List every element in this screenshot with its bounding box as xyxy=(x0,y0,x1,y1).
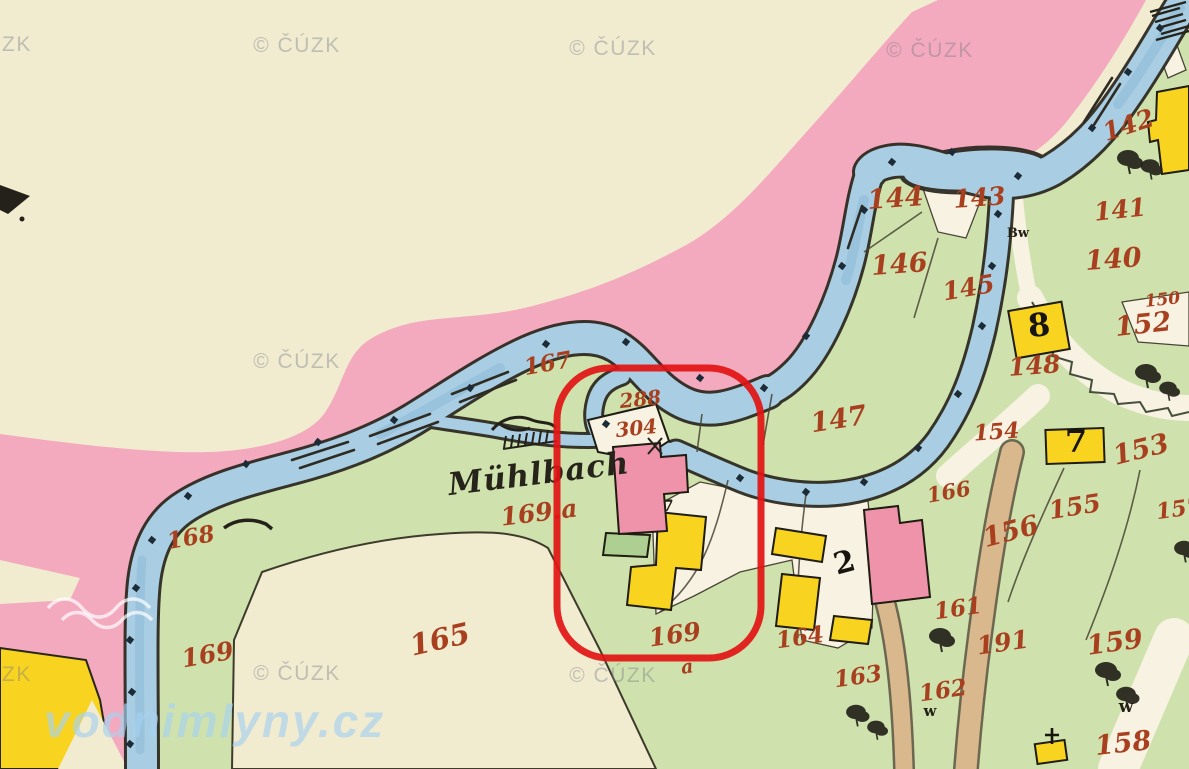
cuzk-watermark-partial: ZK xyxy=(2,663,32,686)
cuzk-watermark: © ČÚZK xyxy=(253,34,340,57)
cuzk-watermark: © ČÚZK xyxy=(253,350,340,373)
historical-cadastral-map: Mühlbach xyxy=(0,0,1189,769)
cuzk-watermark: © ČÚZK xyxy=(569,37,656,60)
parcel-number-label: 146 xyxy=(870,247,929,282)
parcel-number-label: 158 xyxy=(1093,725,1153,762)
farm-yellow-c xyxy=(830,616,872,644)
parcel-number-label: 288 xyxy=(617,385,662,413)
map-abbrev-label: w xyxy=(923,702,938,720)
mill-garden-parcel xyxy=(603,533,650,557)
parcel-number-label: 140 xyxy=(1084,242,1143,277)
parcel-number-label: 152 xyxy=(1113,306,1172,343)
parcel-number-label: 304 xyxy=(614,414,658,442)
house-number-label: 7 xyxy=(1065,422,1087,460)
map-abbrev-label: Bw xyxy=(1007,226,1030,241)
house-number-label: 8 xyxy=(1026,305,1051,345)
parcel-number-label: 148 xyxy=(1007,349,1061,382)
site-watermark: vodnimlyny.cz xyxy=(44,695,385,747)
parcel-number-label: 144 xyxy=(866,181,924,216)
cuzk-watermark-partial: ZK xyxy=(2,33,32,56)
parcel-number-label: 141 xyxy=(1093,192,1148,226)
parcel-number-label: 154 xyxy=(973,417,1021,446)
cuzk-watermark: © ČÚZK xyxy=(253,662,340,685)
farm-building-pink xyxy=(864,506,930,604)
map-abbrev-label: w xyxy=(1118,697,1134,717)
house-number-label: 7 xyxy=(662,496,673,515)
cuzk-watermark: © ČÚZK xyxy=(886,39,973,62)
parcel-number-label: 143 xyxy=(952,181,1006,214)
parcel-number-label: 157 xyxy=(1154,493,1189,525)
cuzk-watermark: © ČÚZK xyxy=(569,664,656,687)
